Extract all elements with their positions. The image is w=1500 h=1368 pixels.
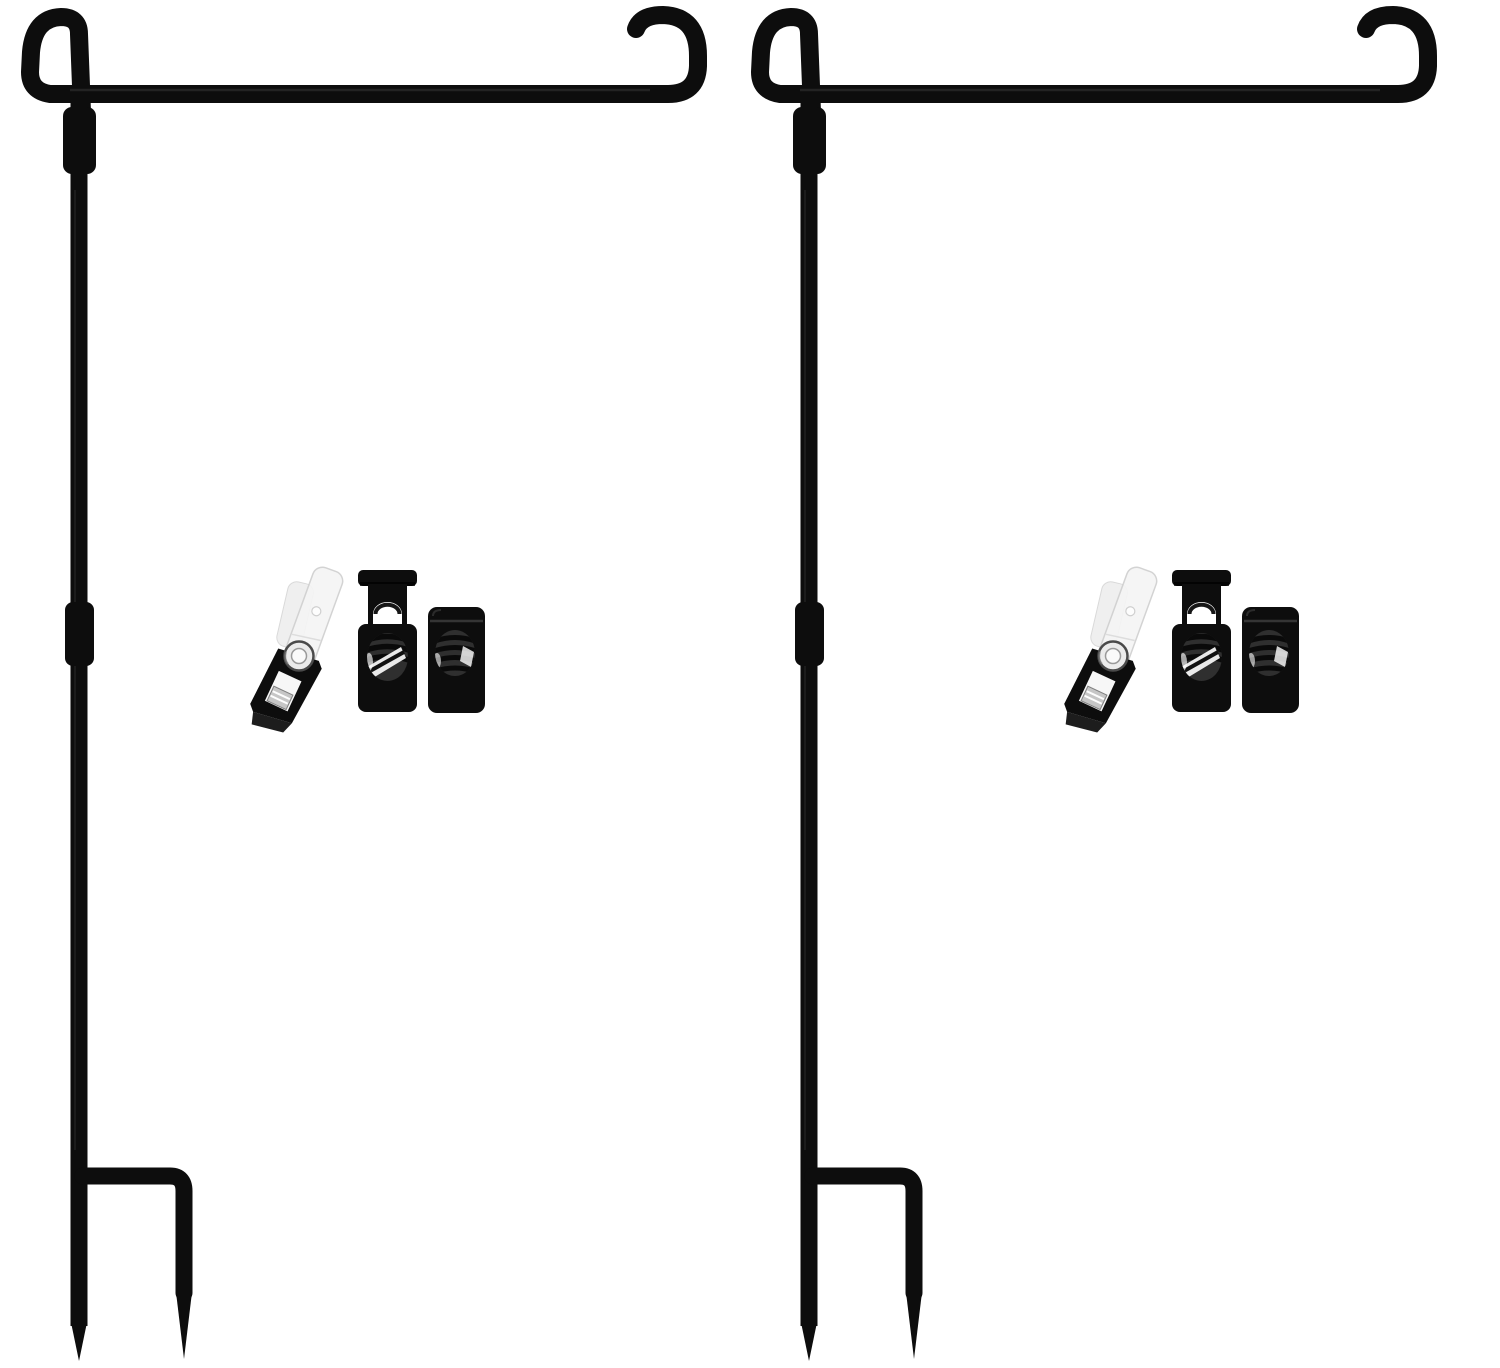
- accessory-kit-left: [243, 558, 485, 742]
- product-photo-canvas: [0, 0, 1500, 1368]
- accessory-kit-right: [1057, 558, 1299, 742]
- product-photo: [0, 0, 1500, 1368]
